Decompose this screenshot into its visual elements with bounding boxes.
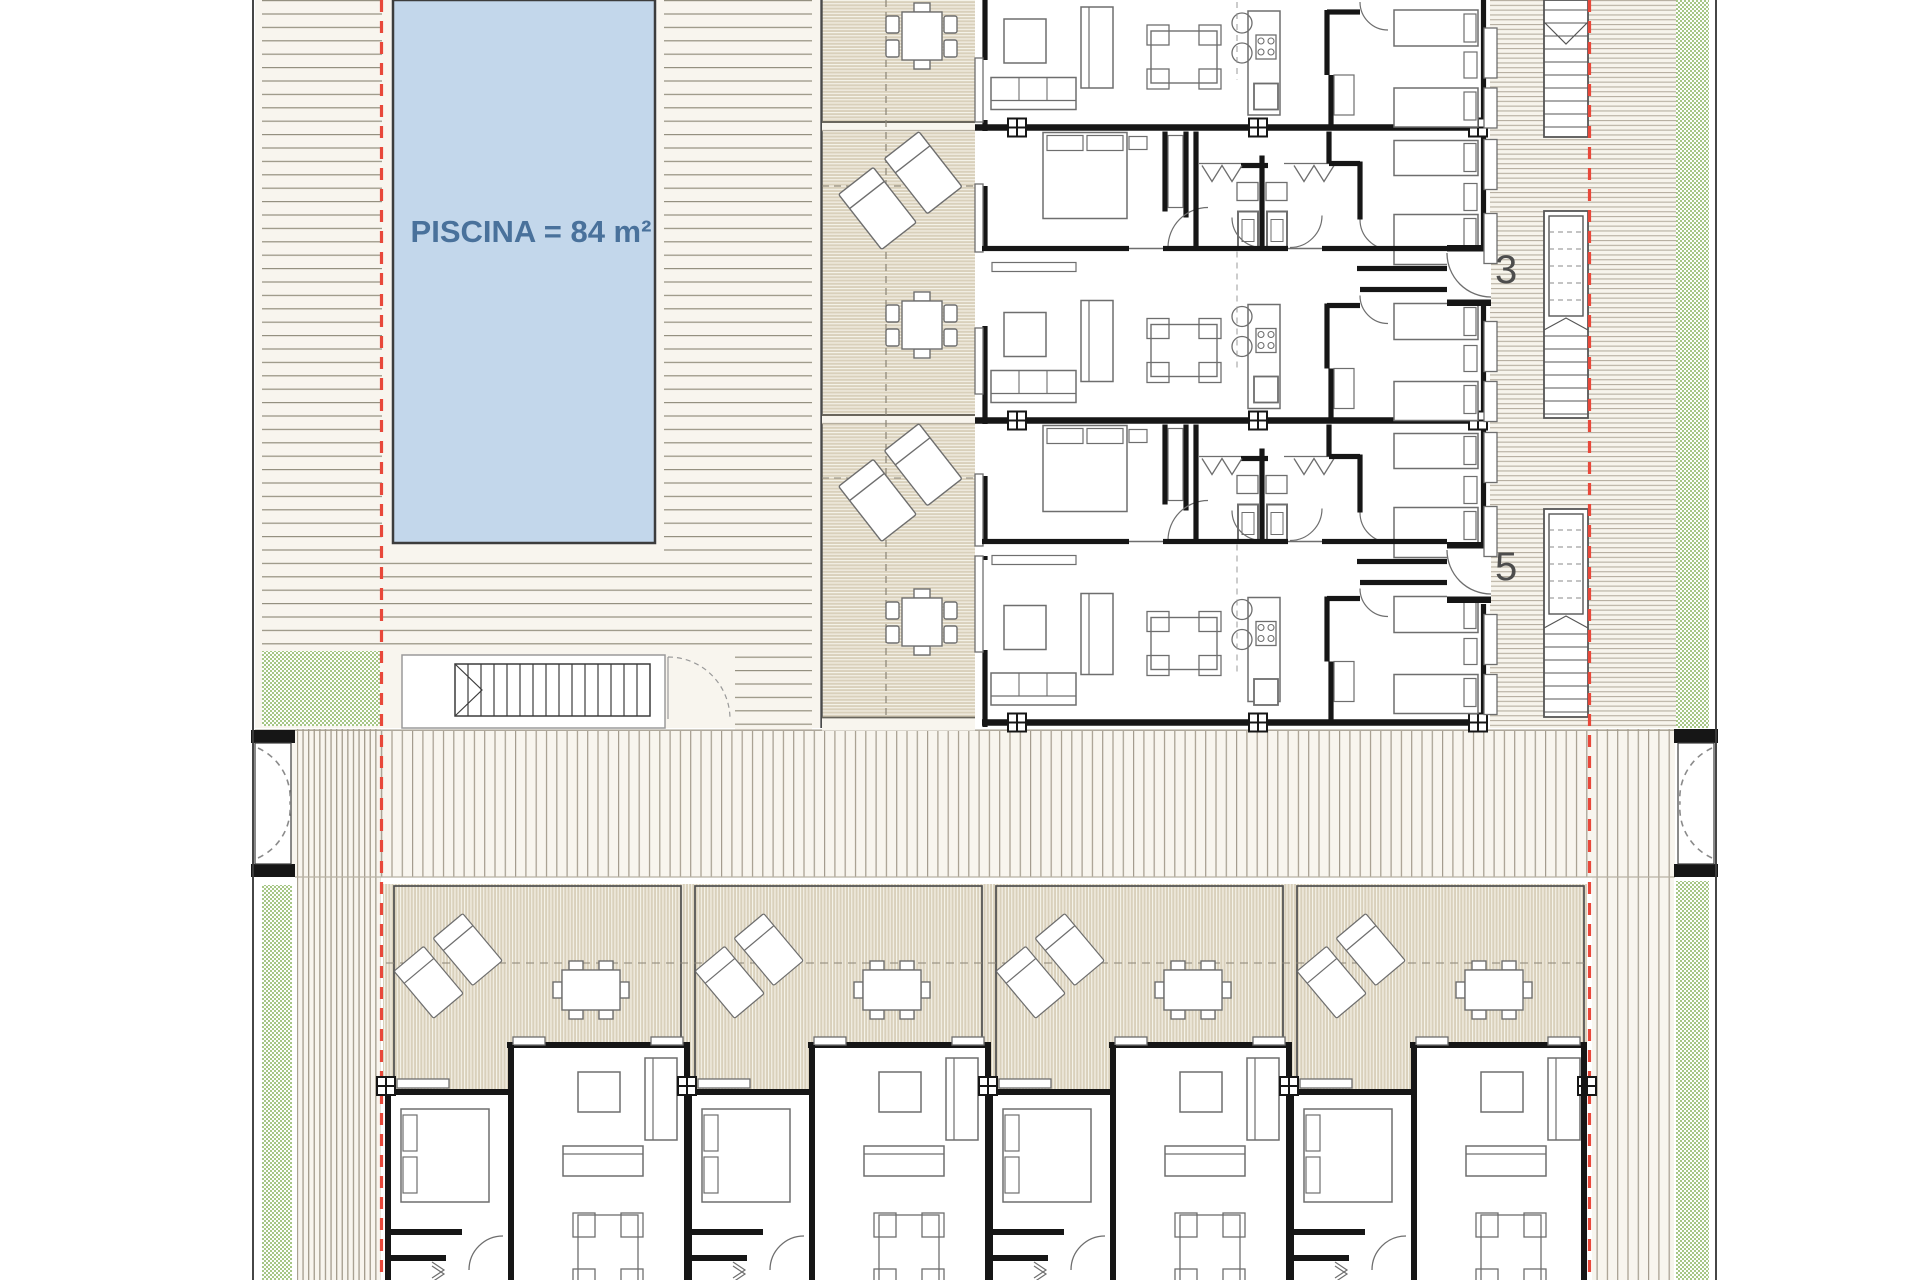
svg-text:3: 3: [1495, 248, 1517, 292]
svg-text:5: 5: [1495, 545, 1517, 589]
svg-text:PISCINA = 84 m²: PISCINA = 84 m²: [411, 214, 652, 249]
